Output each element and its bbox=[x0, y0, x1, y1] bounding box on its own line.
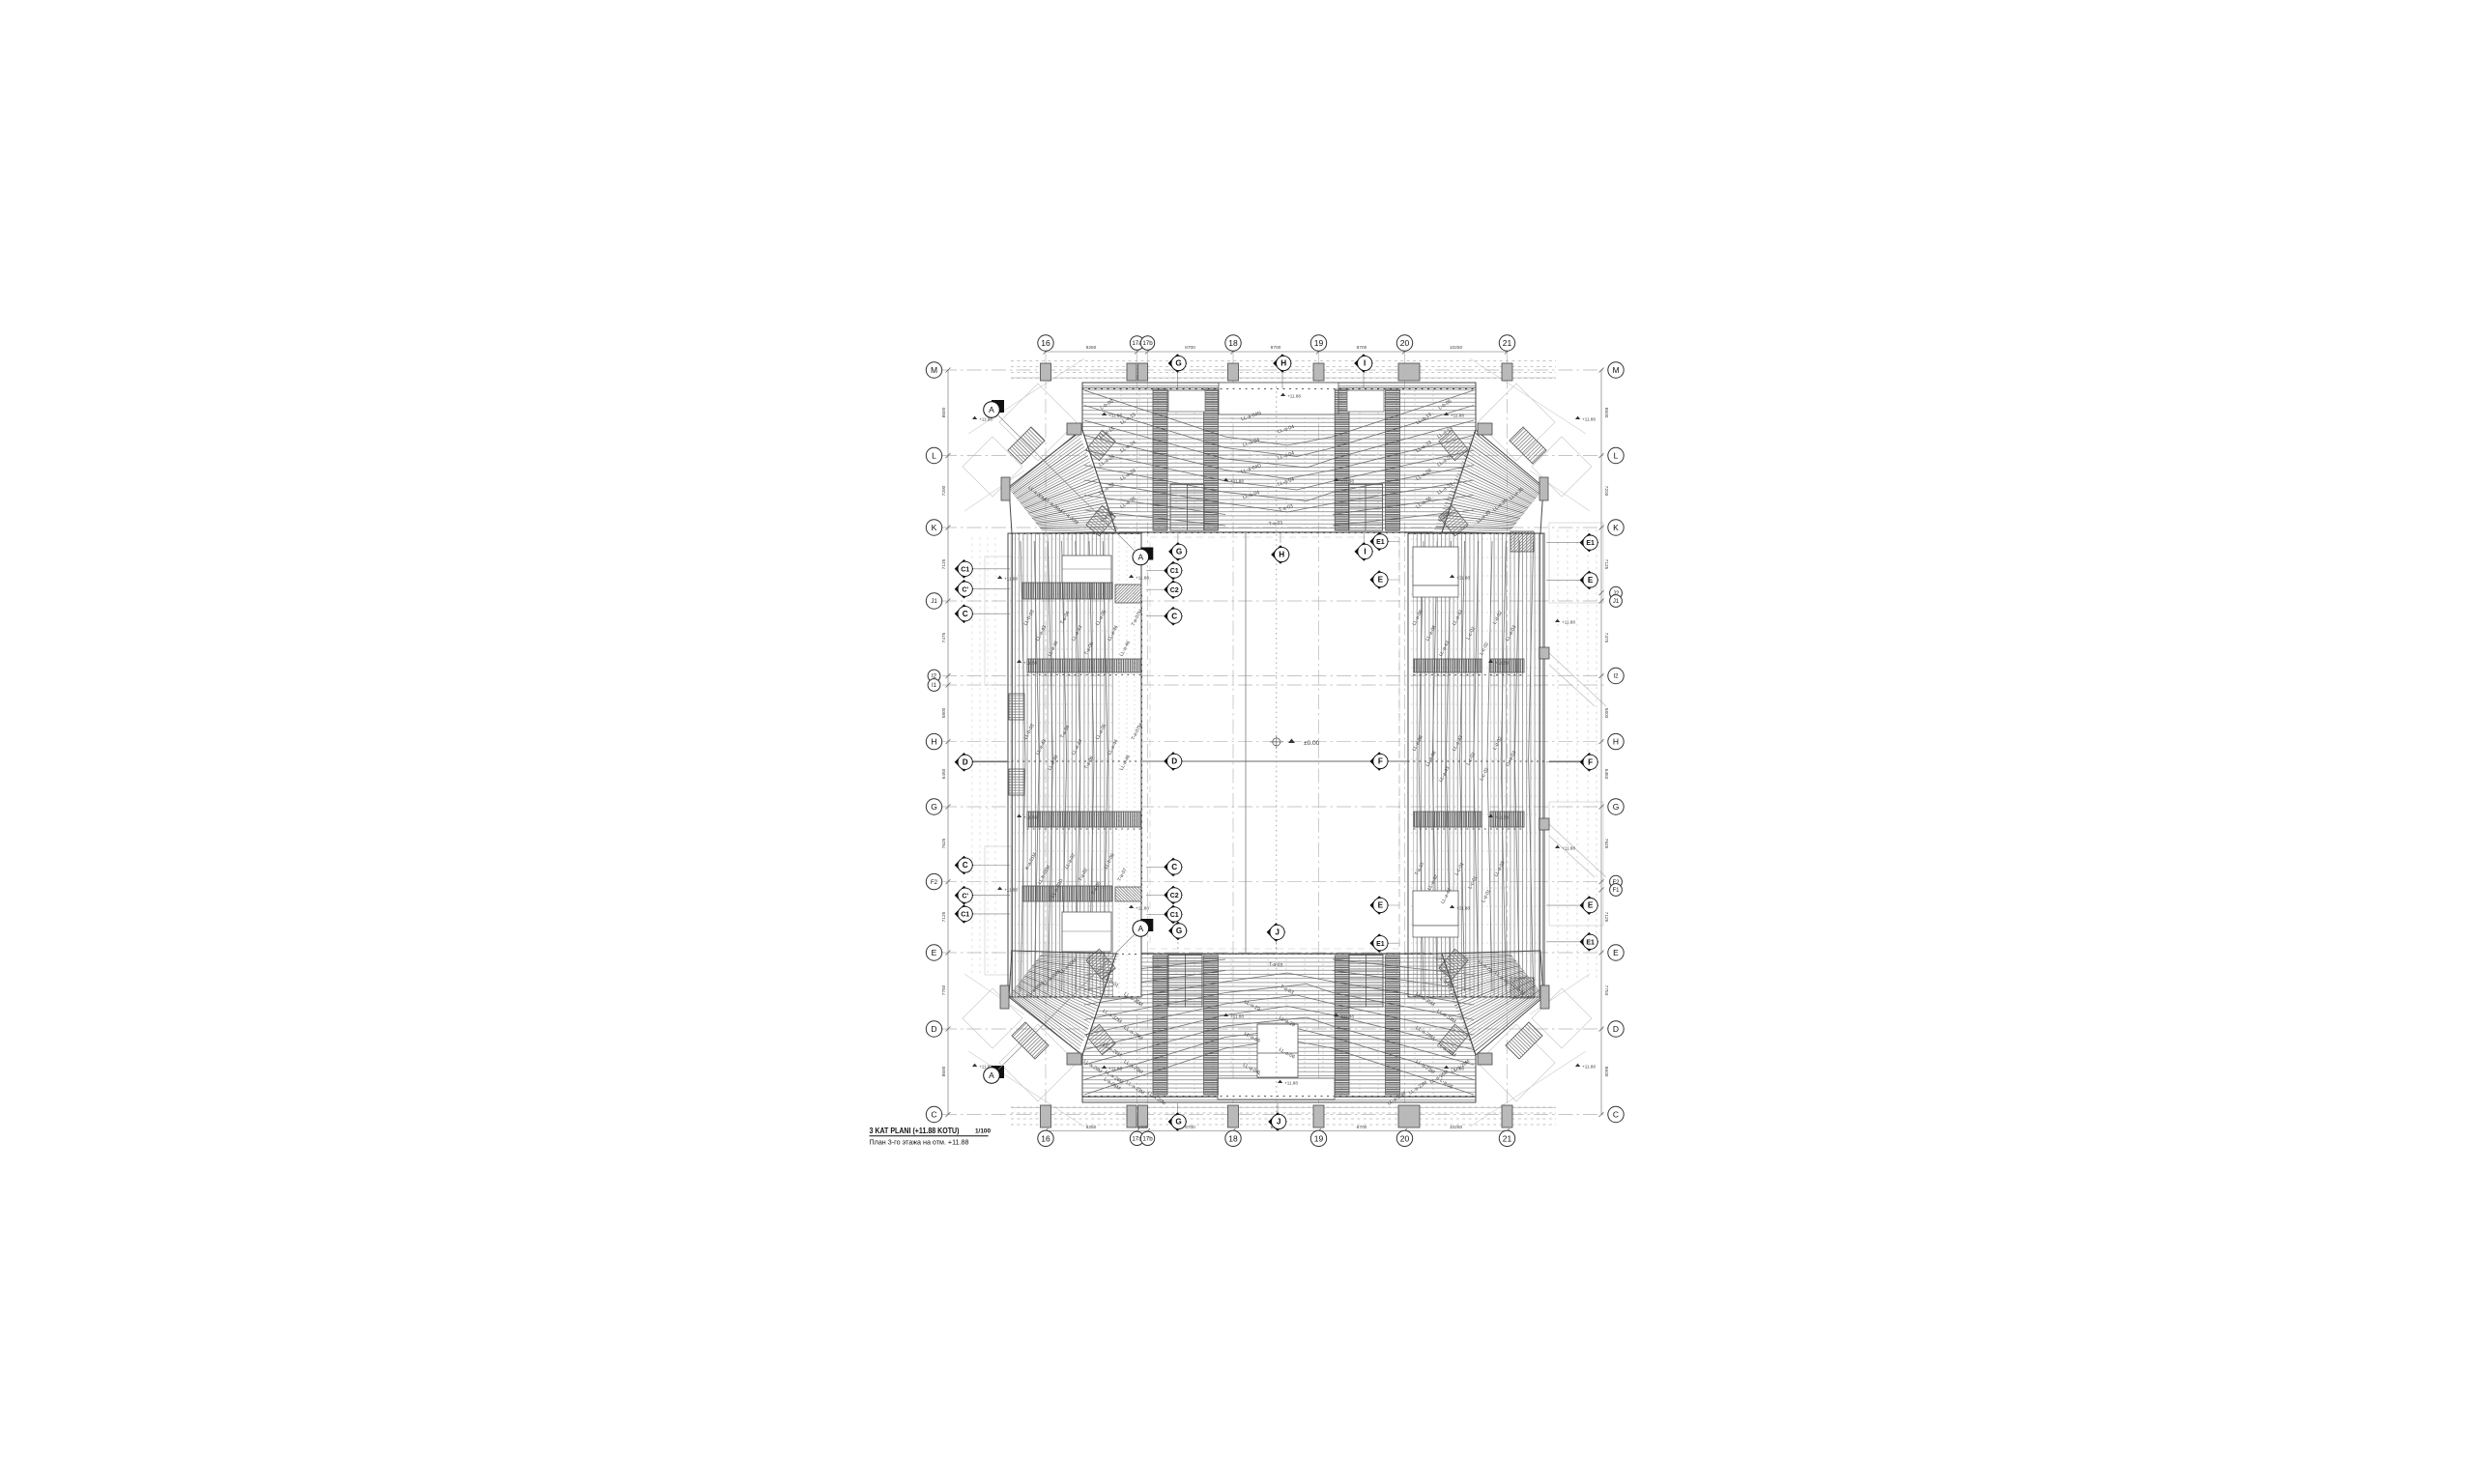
svg-text:+11.88: +11.88 bbox=[1004, 577, 1018, 582]
svg-text:6450: 6450 bbox=[1603, 769, 1609, 780]
svg-text:5800: 5800 bbox=[1603, 708, 1609, 719]
svg-text:8700: 8700 bbox=[1185, 345, 1195, 351]
svg-text:1000: 1000 bbox=[1137, 1125, 1148, 1130]
svg-text:J1: J1 bbox=[931, 599, 937, 605]
svg-text:G: G bbox=[1175, 1118, 1181, 1127]
svg-text:21: 21 bbox=[1503, 1133, 1512, 1143]
svg-text:C': C' bbox=[962, 586, 968, 593]
svg-text:7750: 7750 bbox=[1603, 985, 1609, 996]
svg-text:C2: C2 bbox=[1170, 893, 1179, 899]
svg-text:G: G bbox=[1613, 802, 1620, 812]
svg-text:±0.00: ±0.00 bbox=[1304, 740, 1320, 747]
svg-text:7125: 7125 bbox=[1603, 912, 1609, 923]
svg-text:E1: E1 bbox=[1376, 539, 1385, 546]
svg-text:16: 16 bbox=[1041, 338, 1050, 348]
svg-text:D: D bbox=[1171, 757, 1177, 766]
svg-text:+11.88: +11.88 bbox=[1108, 1067, 1122, 1071]
svg-text:E1: E1 bbox=[1586, 540, 1595, 547]
svg-text:+11.88: +11.88 bbox=[1108, 414, 1122, 418]
svg-text:+11.88: +11.88 bbox=[1456, 906, 1470, 911]
svg-text:F: F bbox=[1378, 757, 1383, 766]
svg-text:H: H bbox=[1613, 737, 1619, 747]
svg-text:8600: 8600 bbox=[941, 407, 947, 417]
svg-text:+11.88: +11.88 bbox=[1136, 576, 1149, 581]
svg-text:7625: 7625 bbox=[941, 838, 947, 848]
svg-text:C1: C1 bbox=[961, 566, 969, 573]
svg-text:G: G bbox=[1176, 927, 1182, 935]
svg-text:F2: F2 bbox=[931, 880, 938, 886]
svg-text:J1: J1 bbox=[1613, 599, 1620, 605]
svg-text:T-a-03: T-a-03 bbox=[1269, 962, 1283, 969]
svg-text:I1: I1 bbox=[932, 683, 937, 689]
svg-text:E: E bbox=[1613, 948, 1619, 957]
svg-text:+11.88: +11.88 bbox=[1562, 846, 1575, 851]
svg-text:T-a-03: T-a-03 bbox=[1269, 520, 1283, 527]
svg-text:E: E bbox=[932, 948, 937, 957]
svg-text:A: A bbox=[989, 1070, 994, 1080]
svg-text:+11.88: +11.88 bbox=[1451, 1067, 1464, 1071]
svg-text:8700: 8700 bbox=[1357, 1125, 1367, 1130]
svg-text:+11.88: +11.88 bbox=[1456, 576, 1470, 581]
svg-text:A: A bbox=[989, 405, 994, 414]
svg-text:E: E bbox=[1378, 901, 1384, 910]
svg-text:+11.88: +11.88 bbox=[1230, 1014, 1244, 1019]
svg-text:D: D bbox=[1613, 1024, 1619, 1034]
svg-text:20: 20 bbox=[1400, 1133, 1410, 1143]
svg-text:F1: F1 bbox=[1612, 888, 1620, 894]
svg-text:7475: 7475 bbox=[1603, 633, 1609, 643]
svg-text:C: C bbox=[963, 861, 968, 870]
svg-text:K: K bbox=[1613, 523, 1619, 532]
svg-text:+11.88: +11.88 bbox=[1284, 1081, 1298, 1086]
svg-text:3 KAT PLANI (+11.88 KOTU): 3 KAT PLANI (+11.88 KOTU) bbox=[870, 1126, 960, 1135]
svg-text:C2: C2 bbox=[1170, 587, 1179, 594]
svg-text:C: C bbox=[931, 1110, 936, 1120]
svg-text:+11.88: +11.88 bbox=[1023, 661, 1037, 666]
svg-text:H: H bbox=[931, 737, 936, 747]
svg-text:+11.88: +11.88 bbox=[1451, 414, 1464, 418]
svg-text:7125: 7125 bbox=[941, 558, 947, 569]
svg-text:E1: E1 bbox=[1586, 939, 1595, 946]
svg-text:K: K bbox=[932, 523, 937, 532]
svg-text:+11.88: +11.88 bbox=[1340, 479, 1354, 484]
svg-text:+11.88: +11.88 bbox=[1495, 815, 1509, 820]
svg-text:5800: 5800 bbox=[941, 707, 947, 718]
svg-text:D: D bbox=[963, 757, 968, 766]
svg-text:L: L bbox=[932, 451, 936, 461]
svg-text:F: F bbox=[1588, 757, 1593, 766]
svg-text:+11.88: +11.88 bbox=[1136, 906, 1149, 911]
svg-text:20: 20 bbox=[1400, 338, 1410, 348]
svg-text:7200: 7200 bbox=[941, 485, 947, 496]
svg-text:I2: I2 bbox=[1613, 674, 1619, 680]
svg-text:E: E bbox=[1588, 901, 1594, 910]
svg-text:I: I bbox=[1364, 359, 1366, 368]
svg-text:C: C bbox=[1171, 863, 1177, 871]
svg-text:8700: 8700 bbox=[1185, 1125, 1195, 1130]
svg-text:C: C bbox=[1171, 612, 1177, 620]
svg-text:A: A bbox=[1137, 553, 1143, 562]
svg-text:18: 18 bbox=[1228, 1133, 1238, 1143]
svg-text:19: 19 bbox=[1314, 1133, 1324, 1143]
svg-text:E: E bbox=[1378, 576, 1384, 585]
svg-text:7475: 7475 bbox=[941, 632, 947, 642]
svg-text:8700: 8700 bbox=[1357, 345, 1367, 351]
svg-text:+11.88: +11.88 bbox=[1495, 661, 1509, 666]
svg-text:J: J bbox=[1275, 928, 1280, 937]
svg-text:+11.88: +11.88 bbox=[1340, 1014, 1354, 1019]
svg-text:8700: 8700 bbox=[1271, 345, 1281, 351]
svg-text:C: C bbox=[963, 610, 968, 618]
svg-text:H: H bbox=[1280, 359, 1286, 368]
svg-text:+11.88: +11.88 bbox=[1562, 620, 1575, 625]
svg-text:7625: 7625 bbox=[1603, 839, 1609, 849]
svg-text:16: 16 bbox=[1041, 1133, 1050, 1143]
svg-text:C1: C1 bbox=[1170, 912, 1179, 919]
svg-text:G: G bbox=[1175, 359, 1181, 368]
svg-text:G: G bbox=[931, 802, 937, 812]
svg-text:E1: E1 bbox=[1376, 941, 1385, 948]
svg-text:9250: 9250 bbox=[1086, 345, 1097, 351]
svg-text:+11.88: +11.88 bbox=[1004, 888, 1018, 893]
svg-text:+11.88: +11.88 bbox=[1230, 479, 1244, 484]
svg-text:L: L bbox=[1614, 451, 1619, 461]
svg-text:J: J bbox=[1277, 1118, 1281, 1127]
svg-text:19: 19 bbox=[1314, 338, 1324, 348]
svg-text:+11.88: +11.88 bbox=[1287, 394, 1301, 399]
svg-text:7750: 7750 bbox=[941, 985, 947, 995]
svg-text:21: 21 bbox=[1503, 338, 1512, 348]
svg-text:План 3-го этажа на отм. +11.88: План 3-го этажа на отм. +11.88 bbox=[870, 1138, 969, 1147]
svg-text:17b: 17b bbox=[1142, 1136, 1153, 1143]
svg-text:C: C bbox=[1613, 1110, 1619, 1120]
svg-text:18: 18 bbox=[1228, 338, 1238, 348]
svg-text:7125: 7125 bbox=[1603, 559, 1609, 570]
svg-text:8600: 8600 bbox=[941, 1066, 947, 1076]
svg-text:C1: C1 bbox=[1170, 568, 1179, 575]
svg-text:+11.88: +11.88 bbox=[1023, 815, 1037, 820]
svg-text:10250: 10250 bbox=[1450, 345, 1463, 351]
svg-text:D: D bbox=[931, 1024, 936, 1034]
svg-text:C1: C1 bbox=[961, 912, 969, 919]
svg-text:8600: 8600 bbox=[1603, 408, 1609, 418]
svg-text:+11.88: +11.88 bbox=[1582, 417, 1596, 422]
svg-text:M: M bbox=[1612, 365, 1619, 375]
svg-text:1/100: 1/100 bbox=[975, 1128, 991, 1135]
svg-text:M: M bbox=[931, 365, 937, 375]
svg-text:7200: 7200 bbox=[1603, 486, 1609, 497]
svg-text:H: H bbox=[1279, 551, 1284, 559]
svg-text:10250: 10250 bbox=[1450, 1125, 1463, 1130]
svg-text:+11.88: +11.88 bbox=[1582, 1065, 1596, 1070]
svg-text:A: A bbox=[1137, 924, 1143, 933]
svg-text:17b: 17b bbox=[1142, 340, 1153, 347]
svg-text:6450: 6450 bbox=[941, 768, 947, 779]
svg-text:7125: 7125 bbox=[941, 911, 947, 922]
svg-text:8600: 8600 bbox=[1603, 1067, 1609, 1077]
svg-text:G: G bbox=[1176, 548, 1182, 556]
svg-text:I: I bbox=[1364, 548, 1366, 556]
svg-text:C': C' bbox=[962, 893, 968, 899]
svg-text:9250: 9250 bbox=[1086, 1125, 1097, 1130]
svg-text:E: E bbox=[1588, 576, 1594, 585]
